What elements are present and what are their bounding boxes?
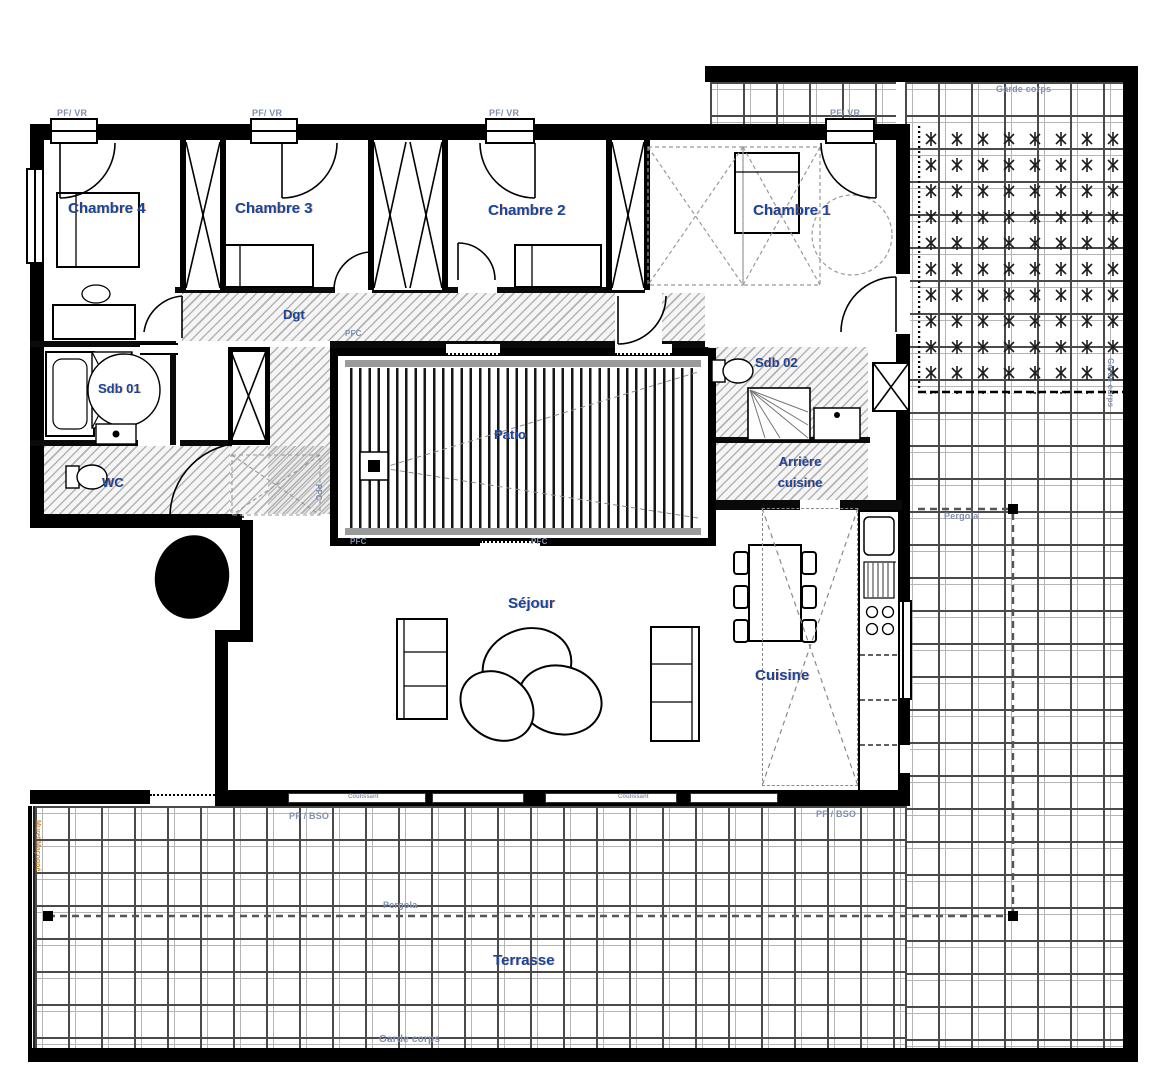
label-garde-corps-right: Garde corps: [1106, 358, 1115, 407]
terrasse-floor-bottom: [33, 806, 907, 1048]
placard-1: [180, 140, 226, 290]
room-label-chambre4: Chambre 4: [68, 200, 146, 217]
desk-chambre4: [52, 304, 136, 340]
apartment-wall-north: [30, 124, 910, 140]
window-pf-vr-2: [250, 118, 298, 144]
gravel-area: [918, 126, 1123, 394]
wc-floor: [44, 446, 230, 514]
room-label-dgt: Dgt: [283, 307, 305, 322]
label-pergola-bottom: Pergola: [383, 900, 417, 910]
placard-2: [368, 140, 448, 290]
label-coulissant-2: Coulissant: [618, 794, 649, 800]
window-west: [26, 168, 44, 264]
label-garde-corps-top: Garde corps: [996, 84, 1051, 94]
label-pfc-1: PFC: [345, 329, 362, 338]
terrace-wall-left: [28, 806, 32, 1048]
patio-door-gap: [446, 344, 500, 355]
sliding-door-panel: [432, 793, 524, 803]
terrace-wall-bottom: [28, 1048, 1138, 1062]
patio-band-top: [345, 360, 701, 367]
label-pfc-4: PFC: [531, 537, 548, 546]
dgt-floor: [182, 293, 615, 341]
label-pf-vr-1: PF/ VR: [57, 108, 87, 118]
label-pf-vr-3: PF/ VR: [489, 108, 519, 118]
window-pf-vr-4: [825, 118, 875, 144]
gravel-pattern: [918, 126, 1123, 394]
terrace-wall-right: [1123, 66, 1138, 1062]
entry-wall-2: [215, 642, 228, 806]
label-garde-corps-bottom: Garde corps: [379, 1034, 440, 1045]
placard-3: [606, 140, 650, 290]
entry-wall-step: [215, 630, 247, 642]
label-pf-bso-right: PF / BSO: [816, 809, 856, 819]
label-pergola-right: Pergola: [944, 511, 978, 521]
label-pf-vr-4: PF/ VR: [830, 108, 860, 118]
room-label-sdb01: Sdb 01: [98, 381, 141, 396]
room-label-chambre1: Chambre 1: [753, 202, 831, 219]
muret-gap: [150, 794, 215, 802]
bed-chambre1: [734, 152, 800, 234]
patio-door-gap: [615, 344, 672, 355]
room-label-chambre3: Chambre 3: [235, 200, 313, 217]
entry-wall-1: [240, 520, 253, 642]
room-label-sdb02: Sdb 02: [755, 355, 798, 370]
terrace-wall-top: [705, 66, 1138, 82]
structural-column: [147, 528, 237, 626]
coffee-table: [447, 617, 609, 755]
label-pfc-2: PFC: [314, 484, 323, 501]
label-muret: Muret Maçonné: [34, 820, 41, 871]
entry-floor: [230, 446, 330, 514]
sofa-1: [396, 618, 448, 720]
chair: [733, 585, 749, 609]
room-label-wc: WC: [102, 475, 124, 490]
window-pf-vr-1: [50, 118, 98, 144]
sofa-2: [650, 626, 700, 742]
room-label-arriere-cuisine: Arrière cuisine: [762, 452, 838, 494]
sliding-door-panel: [690, 793, 778, 803]
label-pf-vr-2: PF/ VR: [252, 108, 282, 118]
room-label-terrasse: Terrasse: [493, 952, 554, 969]
patio-band-bottom: [345, 528, 701, 535]
patio-decking: [350, 368, 698, 528]
chair: [733, 619, 749, 643]
room-label-chambre2: Chambre 2: [488, 202, 566, 219]
kitchen-units-zone: [762, 508, 858, 786]
chair: [733, 551, 749, 575]
sdb01-wall-right: [170, 341, 176, 445]
dgt-floor-2: [662, 293, 705, 341]
muret-wall: [30, 790, 150, 804]
chambre1-terrace-door-gap: [896, 274, 910, 334]
sdb01-fixtures: [46, 352, 160, 444]
sliding-door-panel: [545, 793, 677, 803]
bed-chambre2: [514, 244, 602, 288]
sdb01-door-gap: [140, 343, 178, 355]
label-pf-bso-left: PF / BSO: [289, 811, 329, 821]
label-pfc-3: PFC: [350, 537, 367, 546]
wc-wall-south: [30, 514, 242, 528]
floor-plan: Chambre 4 Chambre 3 Chambre 2 Chambre 1 …: [0, 0, 1166, 1080]
room-label-sejour: Séjour: [508, 595, 555, 612]
room-label-cuisine: Cuisine: [755, 667, 809, 684]
bed-chambre3: [222, 244, 314, 288]
window-sdb02: [872, 362, 910, 412]
room-label-patio: Patio: [494, 427, 526, 442]
kitchen-counter: [858, 510, 900, 792]
window-pf-vr-3: [485, 118, 535, 144]
entry-closet: [228, 347, 270, 445]
label-coulissant-1: Coulissant: [348, 794, 379, 800]
